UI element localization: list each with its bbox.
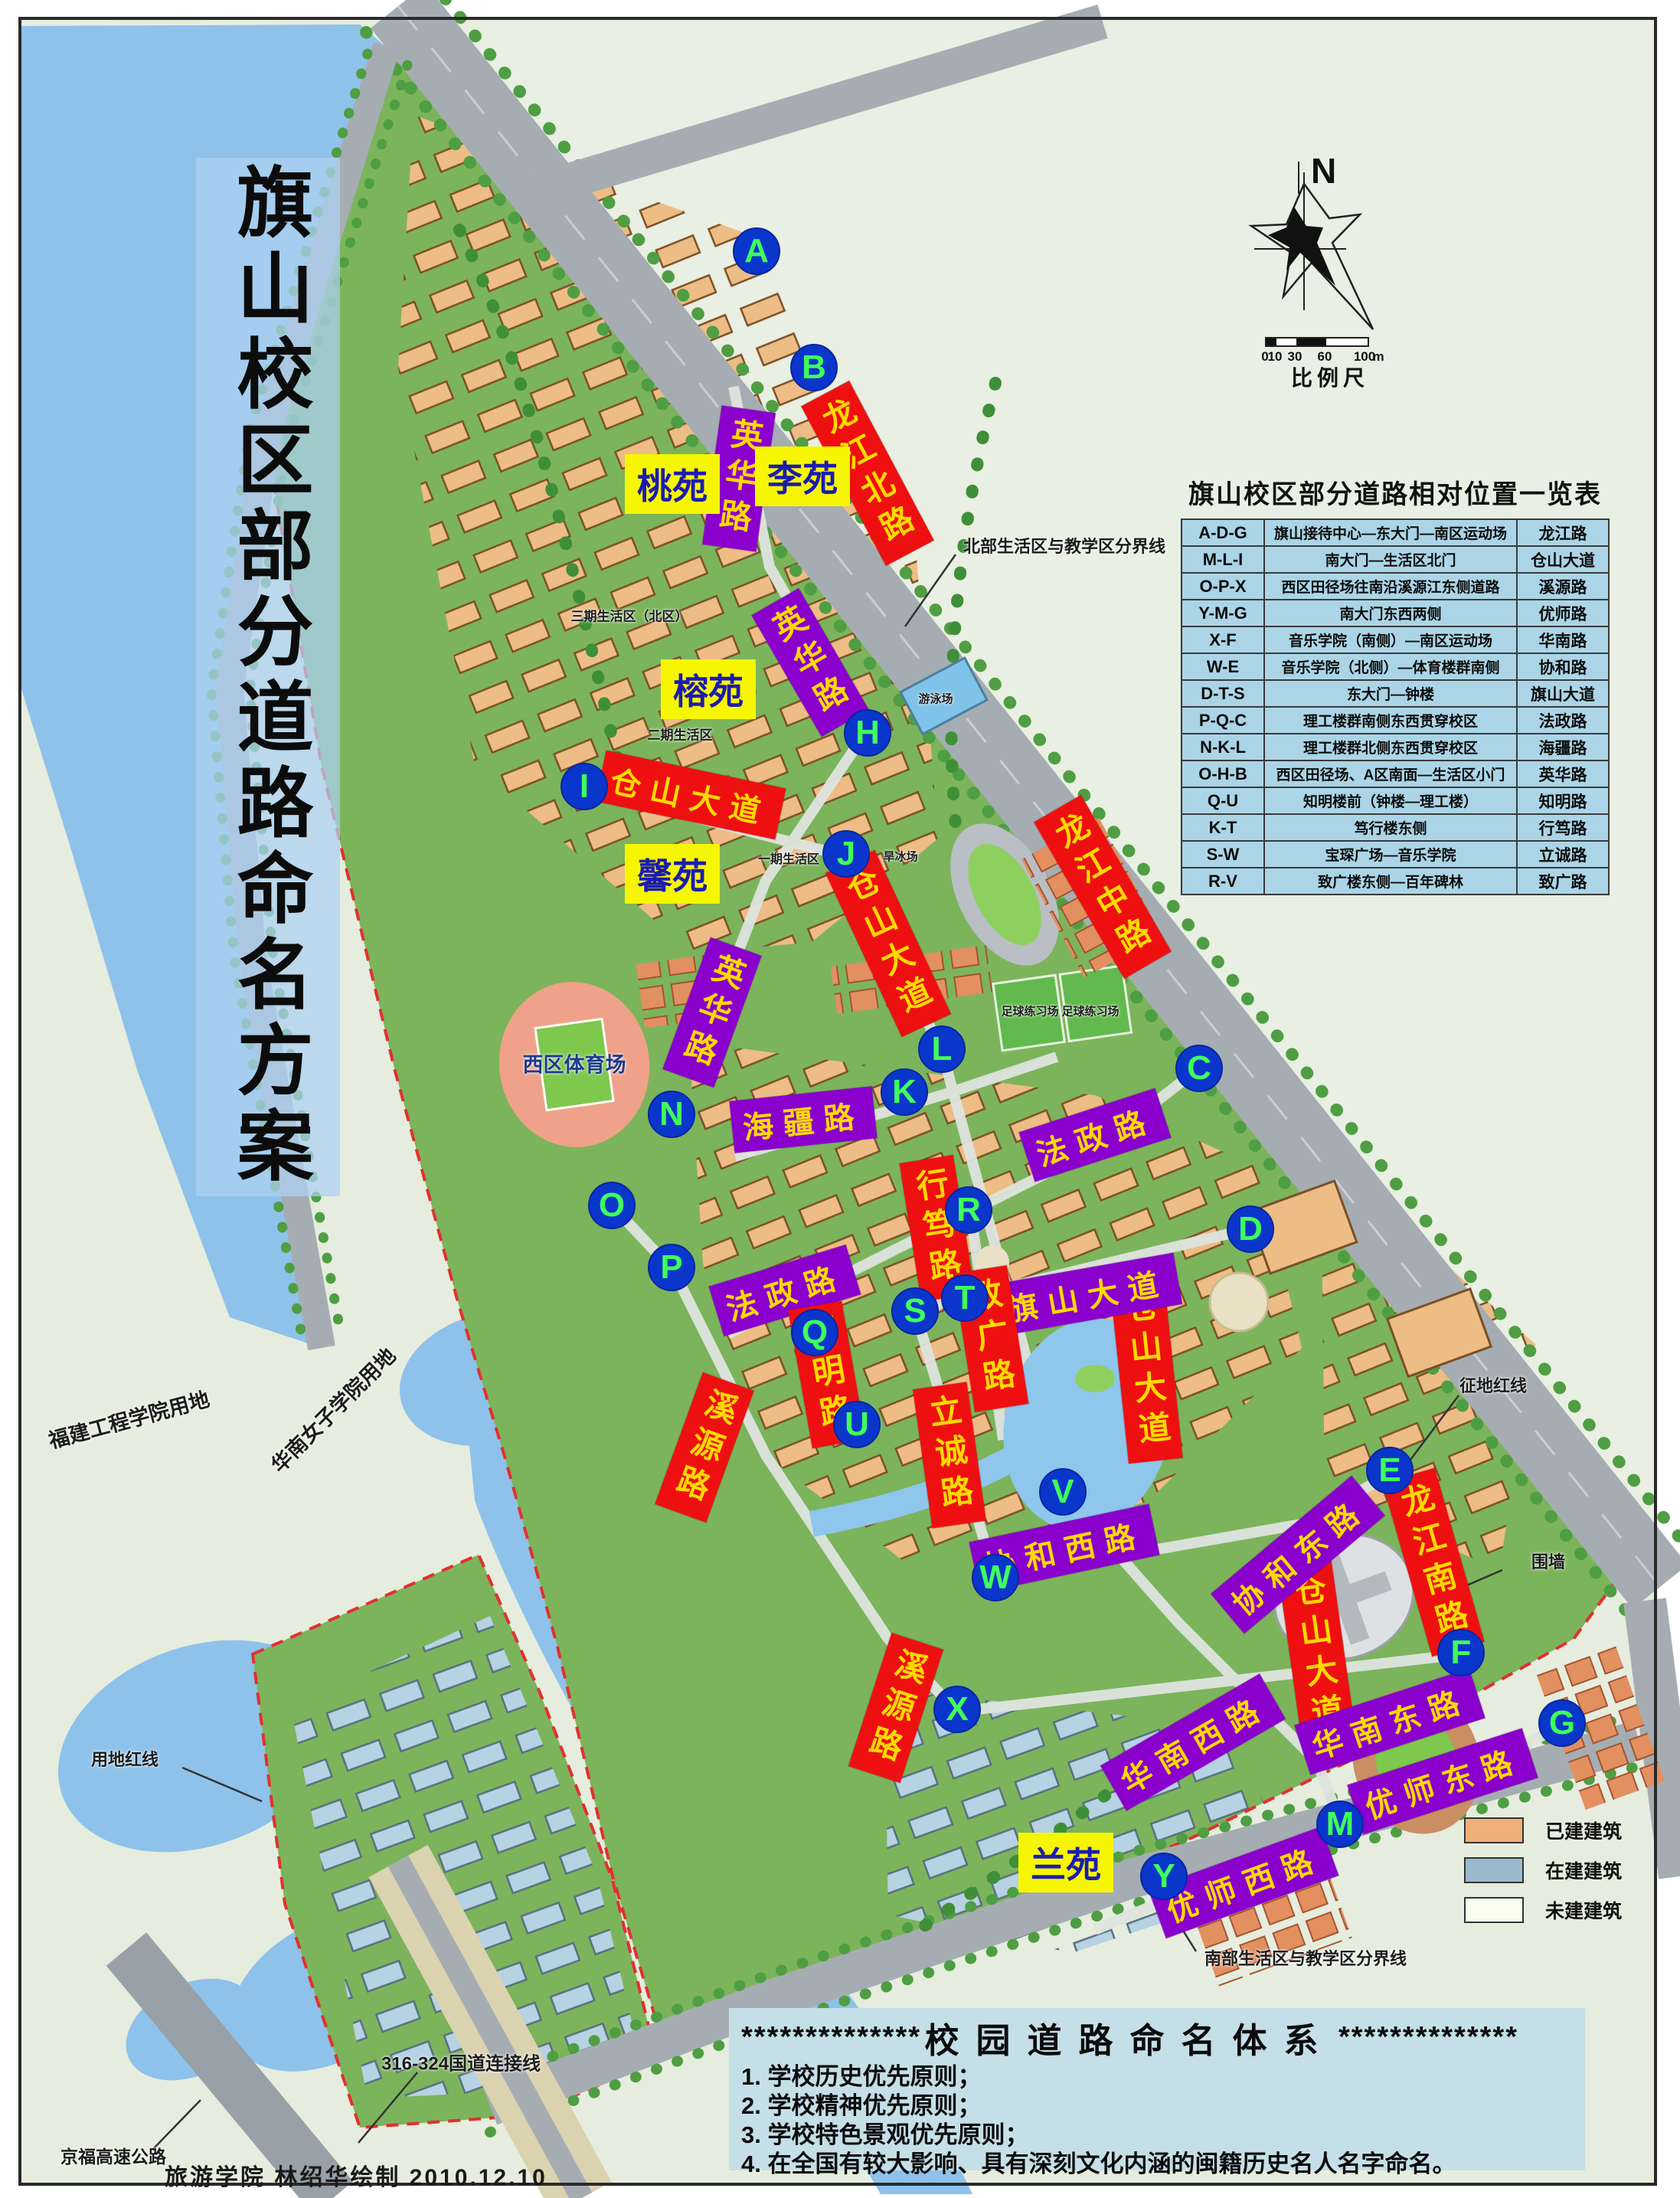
table-row: D-T-S东大门—钟楼旗山大道 [1182, 680, 1609, 707]
stars-right: ************** [1338, 2021, 1518, 2053]
map-annotation: 316-324国道连接线 [381, 2049, 541, 2075]
road-point-marker-E: E [1366, 1447, 1414, 1494]
table-cell: O-P-X [1182, 573, 1264, 600]
legend-swatch-icon [1464, 1817, 1524, 1843]
table-cell: 致广路 [1517, 868, 1609, 895]
legend-label: 已建建筑 [1545, 1817, 1622, 1844]
naming-principle: 3. 学校特色景观优先原则； [741, 2121, 1573, 2150]
road-point-marker-T: T [941, 1274, 989, 1322]
table-cell: N-K-L [1182, 734, 1264, 760]
naming-system-panel: ************** 校园道路命名体系 ************** 1… [729, 2008, 1585, 2170]
table-cell: O-H-B [1182, 760, 1264, 787]
compass-north-label: N [1311, 150, 1336, 191]
table-cell: Y-M-G [1182, 600, 1264, 626]
table-cell: K-T [1182, 814, 1264, 841]
map-annotation: 三期生活区（北区） [571, 606, 688, 625]
road-point-marker-P: P [648, 1244, 695, 1291]
table-cell: 南大门—生活区北门 [1264, 546, 1517, 573]
road-point-marker-J: J [822, 830, 870, 878]
legend-swatch-icon [1464, 1857, 1524, 1883]
map-annotation: 一期生活区 [758, 849, 819, 867]
table-cell: 笃行楼东侧 [1264, 814, 1517, 841]
road-point-marker-W: W [972, 1554, 1019, 1601]
table-row: O-H-B西区田径场、A区南面—生活区小门英华路 [1182, 760, 1609, 787]
table-cell: 理工楼群北侧东西贯穿校区 [1264, 734, 1517, 760]
map-annotation: 南部生活区与教学区分界线 [1204, 1945, 1407, 1970]
legend-label: 在建建筑 [1545, 1856, 1622, 1884]
table-row: N-K-L理工楼群北侧东西贯穿校区海疆路 [1182, 734, 1609, 760]
road-point-marker-H: H [844, 709, 891, 757]
road-point-marker-U: U [833, 1401, 881, 1448]
table-cell: M-L-I [1182, 546, 1264, 573]
map-title: 旗山校区部分道路命名方案 [230, 162, 306, 1192]
table-cell: 旗山大道 [1517, 680, 1609, 707]
table-row: M-L-I南大门—生活区北门仓山大道 [1182, 546, 1609, 573]
road-table: A-D-G旗山接待中心—东大门—南区运动场龙江路M-L-I南大门—生活区北门仓山… [1181, 518, 1610, 895]
naming-principle: 4. 在全国有较大影响、具有深刻文化内涵的闽籍历史名人名字命名。 [741, 2150, 1573, 2179]
table-cell: 理工楼群南侧东西贯穿校区 [1264, 707, 1517, 734]
table-row: R-V致广楼东侧—百年碑林致广路 [1182, 868, 1609, 895]
table-cell: 音乐学院（北侧）—体育楼群南侧 [1264, 653, 1517, 680]
road-point-marker-G: G [1538, 1699, 1586, 1747]
road-point-marker-Q: Q [791, 1309, 838, 1356]
map-annotation: 足球练习场 [1061, 1003, 1119, 1019]
table-cell: 知明路 [1517, 787, 1609, 814]
scale-tick-label: 30 [1288, 349, 1302, 365]
table-cell: W-E [1182, 653, 1264, 680]
table-cell: 海疆路 [1517, 734, 1609, 760]
road-point-marker-A: A [733, 227, 780, 275]
road-point-marker-O: O [588, 1182, 636, 1229]
area-label-馨苑: 馨苑 [625, 844, 720, 904]
table-cell: 仓山大道 [1517, 546, 1609, 573]
table-cell: 溪源路 [1517, 573, 1609, 600]
table-cell: 英华路 [1517, 760, 1609, 787]
legend-item: 未建建筑 [1464, 1896, 1622, 1924]
table-cell: X-F [1182, 626, 1264, 653]
table-row: X-F音乐学院（南侧）—南区运动场华南路 [1182, 626, 1609, 653]
scale-caption: 比例尺 [1291, 361, 1369, 392]
naming-system-title-line: ************** 校园道路命名体系 ************** [741, 2013, 1573, 2062]
table-cell: 西区田径场往南沿溪源江东侧道路 [1264, 573, 1517, 600]
map-annotation: 征地红线 [1459, 1372, 1527, 1397]
credit-text: 旅游学院 林绍华绘制 2010.12.10 [165, 2158, 547, 2192]
table-cell: 宝琛广场—音乐学院 [1264, 841, 1517, 868]
map-annotation: 围墙 [1531, 1549, 1565, 1573]
table-cell: 知明楼前（钟楼—理工楼） [1264, 787, 1517, 814]
road-point-marker-M: M [1316, 1801, 1364, 1848]
map-annotation: 京福高速公路 [60, 2142, 166, 2168]
road-point-marker-C: C [1175, 1045, 1223, 1092]
road-point-marker-S: S [891, 1287, 939, 1335]
road-point-marker-X: X [933, 1686, 981, 1733]
legend-item: 已建建筑 [1464, 1817, 1622, 1844]
table-cell: Q-U [1182, 787, 1264, 814]
map-annotation: 二期生活区 [648, 724, 713, 744]
scale-bar [1265, 337, 1369, 347]
table-cell: S-W [1182, 841, 1264, 868]
road-point-marker-I: I [561, 763, 608, 810]
table-cell: 优师路 [1517, 600, 1609, 626]
legend-swatch-icon [1464, 1897, 1524, 1923]
road-point-marker-D: D [1227, 1205, 1274, 1253]
table-cell: 西区田径场、A区南面—生活区小门 [1264, 760, 1517, 787]
table-cell: A-D-G [1182, 519, 1264, 546]
area-label-兰苑: 兰苑 [1018, 1833, 1113, 1892]
table-cell: P-Q-C [1182, 707, 1264, 734]
road-point-marker-K: K [881, 1068, 928, 1116]
scale-segment [1296, 339, 1326, 345]
road-point-marker-B: B [790, 344, 838, 391]
legend-label: 未建建筑 [1545, 1896, 1622, 1924]
legend-item: 在建建筑 [1464, 1856, 1622, 1884]
table-row: K-T笃行楼东侧行笃路 [1182, 814, 1609, 841]
road-point-marker-V: V [1039, 1468, 1087, 1516]
map-annotation: 足球练习场 [1001, 1003, 1058, 1019]
naming-system-title: 校园道路命名体系 [925, 2021, 1335, 2060]
table-cell: 致广楼东侧—百年碑林 [1264, 868, 1517, 895]
table-cell: 旗山接待中心—东大门—南区运动场 [1264, 519, 1517, 546]
table-cell: 法政路 [1517, 707, 1609, 734]
table-cell: 龙江路 [1517, 519, 1609, 546]
road-point-marker-F: F [1437, 1629, 1485, 1676]
table-cell: 协和路 [1517, 653, 1609, 680]
scale-segment [1267, 339, 1276, 345]
table-row: O-P-X西区田径场往南沿溪源江东侧道路溪源路 [1182, 573, 1609, 600]
table-cell: 南大门东西两侧 [1264, 600, 1517, 626]
map-annotation: 西区体育场 [523, 1048, 626, 1078]
map-annotation: 游泳场 [918, 691, 953, 707]
table-cell: 立诚路 [1517, 841, 1609, 868]
table-cell: 华南路 [1517, 626, 1609, 653]
campus-map-document: 旗山校区部分道路命名方案 N 比例尺 英华路英华路英华路龙江北路龙江中路龙江南路… [0, 0, 1680, 2198]
table-row: Q-U知明楼前（钟楼—理工楼）知明路 [1182, 787, 1609, 814]
scale-tick-label: 60 [1318, 349, 1332, 365]
road-point-marker-L: L [918, 1025, 966, 1073]
road-point-marker-N: N [648, 1091, 695, 1138]
map-annotation: 旱冰场 [883, 849, 917, 865]
table-cell: 东大门—钟楼 [1264, 680, 1517, 707]
area-label-榕苑: 榕苑 [661, 659, 756, 719]
table-cell: 音乐学院（南侧）—南区运动场 [1264, 626, 1517, 653]
road-position-table-panel: 旗山校区部分道路相对位置一览表 A-D-G旗山接待中心—东大门—南区运动场龙江路… [1181, 473, 1610, 895]
table-row: S-W宝琛广场—音乐学院立诚路 [1182, 841, 1609, 868]
table-cell: R-V [1182, 868, 1264, 895]
road-point-marker-Y: Y [1140, 1853, 1188, 1900]
table-cell: 行笃路 [1517, 814, 1609, 841]
table-title: 旗山校区部分道路相对位置一览表 [1181, 473, 1610, 511]
table-row: A-D-G旗山接待中心—东大门—南区运动场龙江路 [1182, 519, 1609, 546]
naming-principle: 2. 学校精神优先原则； [741, 2092, 1573, 2121]
table-row: Y-M-G南大门东西两侧优师路 [1182, 600, 1609, 626]
map-title-band: 旗山校区部分道路命名方案 [196, 158, 340, 1196]
naming-principle: 1. 学校历史优先原则； [741, 2062, 1573, 2092]
scale-tick-label: 10 [1268, 349, 1283, 365]
table-cell: D-T-S [1182, 680, 1264, 707]
road-point-marker-R: R [945, 1186, 992, 1234]
area-label-李苑: 李苑 [755, 446, 850, 506]
map-annotation: 北部生活区与教学区分界线 [963, 533, 1165, 558]
scale-unit-label: m [1372, 349, 1384, 365]
stars-left: ************** [741, 2021, 921, 2053]
legend: 已建建筑在建建筑未建建筑 [1464, 1817, 1622, 1936]
table-row: W-E音乐学院（北侧）—体育楼群南侧协和路 [1182, 653, 1609, 680]
area-label-桃苑: 桃苑 [625, 454, 720, 514]
map-annotation: 用地红线 [91, 1746, 159, 1771]
table-row: P-Q-C理工楼群南侧东西贯穿校区法政路 [1182, 707, 1609, 734]
